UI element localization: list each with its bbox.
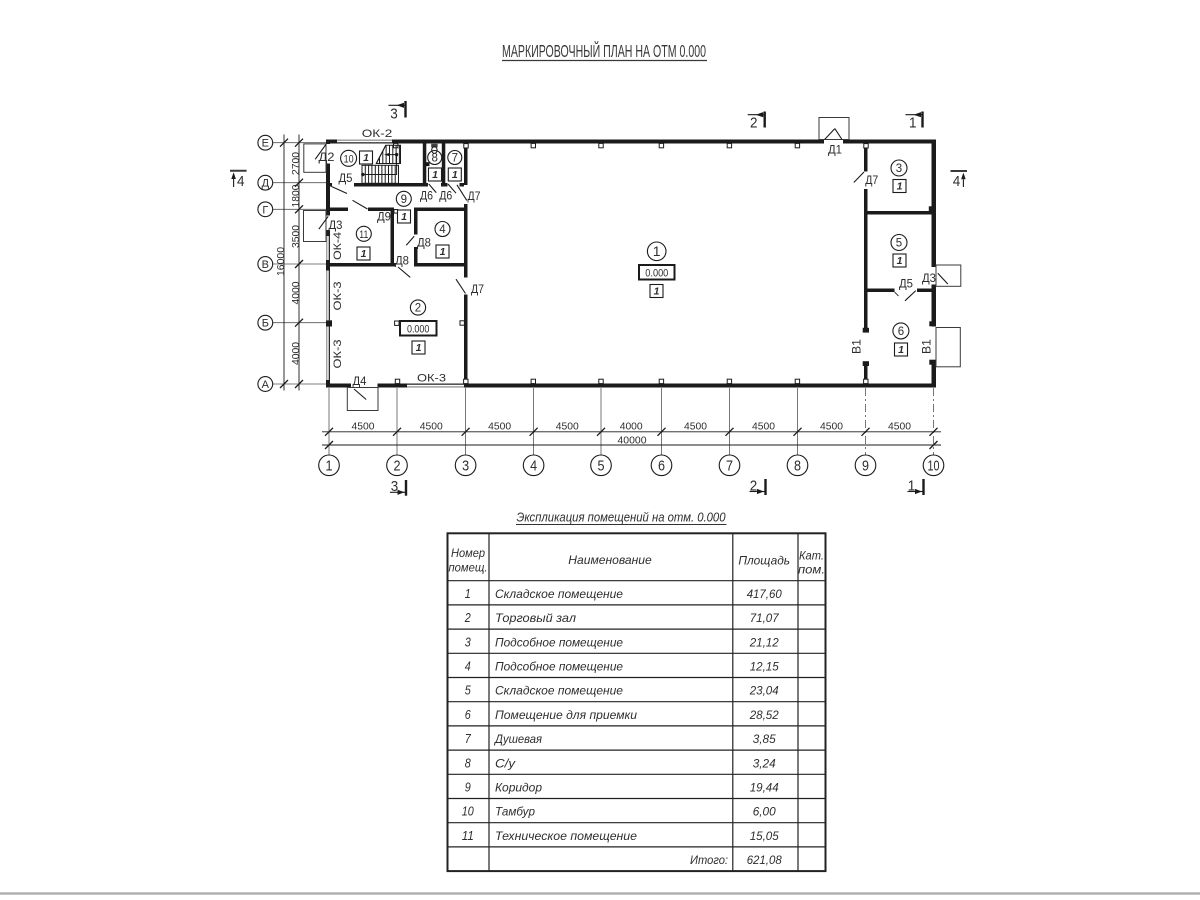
- svg-text:ОК-3: ОК-3: [417, 373, 446, 385]
- svg-text:1: 1: [898, 344, 904, 356]
- svg-text:7: 7: [726, 458, 733, 475]
- svg-text:В1: В1: [852, 339, 864, 354]
- svg-text:1: 1: [465, 587, 471, 601]
- svg-text:40000: 40000: [618, 435, 647, 447]
- svg-text:28,52: 28,52: [749, 708, 779, 722]
- svg-text:11: 11: [462, 829, 474, 843]
- svg-text:4000: 4000: [290, 342, 302, 365]
- svg-text:6,00: 6,00: [753, 805, 776, 819]
- svg-text:Помещение для приемки: Помещение для приемки: [495, 708, 637, 722]
- svg-text:1: 1: [909, 114, 917, 131]
- svg-text:1: 1: [416, 342, 422, 354]
- svg-text:1: 1: [440, 246, 446, 258]
- svg-text:В: В: [262, 259, 269, 271]
- svg-text:Д8: Д8: [417, 238, 431, 250]
- svg-text:1800: 1800: [290, 184, 302, 207]
- svg-text:Техническое помещение: Техническое помещение: [495, 829, 637, 843]
- svg-text:2: 2: [415, 303, 421, 315]
- svg-text:8: 8: [431, 153, 437, 165]
- svg-text:ОК-2: ОК-2: [362, 128, 393, 140]
- svg-text:С/у: С/у: [495, 756, 516, 770]
- svg-text:9: 9: [465, 781, 471, 795]
- svg-text:3: 3: [390, 105, 398, 122]
- svg-text:Д1: Д1: [828, 145, 842, 157]
- svg-text:Торговый зал: Торговый зал: [495, 611, 576, 625]
- svg-text:15,05: 15,05: [750, 829, 779, 843]
- svg-text:Д7: Д7: [471, 284, 484, 296]
- svg-text:Д7: Д7: [468, 191, 481, 203]
- svg-text:Складское помещение: Складское помещение: [495, 587, 623, 601]
- svg-text:Д8: Д8: [395, 256, 409, 268]
- svg-text:1: 1: [653, 243, 661, 259]
- svg-text:7: 7: [452, 153, 458, 165]
- svg-text:1: 1: [326, 458, 333, 475]
- svg-text:0.000: 0.000: [407, 324, 430, 336]
- svg-text:23,04: 23,04: [749, 684, 779, 698]
- svg-text:10: 10: [462, 805, 474, 819]
- svg-text:пом.: пом.: [798, 563, 825, 577]
- svg-text:Кат.: Кат.: [799, 549, 824, 563]
- svg-text:Д3: Д3: [922, 273, 936, 285]
- svg-text:3: 3: [391, 478, 399, 495]
- svg-text:2700: 2700: [290, 152, 302, 175]
- svg-text:4: 4: [237, 173, 245, 190]
- svg-text:1: 1: [361, 248, 367, 260]
- svg-text:4: 4: [953, 173, 961, 190]
- svg-text:4500: 4500: [352, 420, 375, 432]
- svg-text:4: 4: [465, 660, 471, 674]
- svg-text:1: 1: [897, 181, 903, 193]
- svg-text:4: 4: [530, 458, 537, 475]
- svg-text:1: 1: [363, 152, 369, 164]
- svg-text:8: 8: [465, 756, 471, 770]
- svg-text:Д2: Д2: [319, 152, 335, 164]
- svg-text:3,24: 3,24: [753, 756, 776, 770]
- svg-text:Складское помещение: Складское помещение: [495, 684, 623, 698]
- svg-text:Г: Г: [262, 204, 268, 216]
- svg-text:1: 1: [452, 169, 458, 181]
- svg-text:1: 1: [401, 211, 407, 223]
- svg-text:7: 7: [465, 732, 472, 746]
- svg-text:2: 2: [750, 114, 758, 131]
- svg-text:ОК-3: ОК-3: [332, 340, 344, 369]
- svg-text:МАРКИРОВОЧНЫЙ ПЛАН НА ОТМ 0.00: МАРКИРОВОЧНЫЙ ПЛАН НА ОТМ 0.000: [502, 40, 706, 61]
- svg-text:1: 1: [432, 169, 438, 181]
- svg-text:9: 9: [401, 194, 407, 206]
- svg-text:1: 1: [908, 478, 916, 495]
- svg-text:4000: 4000: [620, 420, 643, 432]
- svg-text:2: 2: [394, 458, 401, 475]
- svg-text:4500: 4500: [488, 420, 511, 432]
- svg-text:3500: 3500: [290, 225, 302, 248]
- svg-text:Д6: Д6: [439, 191, 452, 203]
- svg-text:4: 4: [439, 224, 446, 236]
- svg-text:ОК-4: ОК-4: [332, 232, 344, 260]
- svg-text:Д3: Д3: [329, 220, 343, 232]
- svg-text:4500: 4500: [420, 420, 443, 432]
- svg-text:Итого:: Итого:: [690, 853, 728, 867]
- svg-text:417,60: 417,60: [747, 587, 782, 601]
- svg-text:11: 11: [359, 229, 368, 241]
- svg-text:2: 2: [464, 611, 471, 625]
- svg-text:Д7: Д7: [865, 175, 878, 187]
- svg-text:1: 1: [897, 255, 903, 267]
- svg-text:71,07: 71,07: [750, 611, 780, 625]
- svg-text:21,12: 21,12: [749, 635, 779, 649]
- svg-text:0.000: 0.000: [645, 268, 668, 280]
- svg-text:4500: 4500: [752, 420, 775, 432]
- svg-text:Номер: Номер: [451, 546, 485, 560]
- svg-text:10: 10: [344, 153, 354, 165]
- svg-text:А: А: [262, 379, 270, 391]
- svg-text:Тамбур: Тамбур: [495, 805, 535, 819]
- svg-text:Д5: Д5: [899, 279, 913, 291]
- svg-text:3: 3: [462, 458, 469, 475]
- svg-text:1: 1: [654, 286, 660, 298]
- svg-text:Д5: Д5: [339, 173, 353, 185]
- svg-text:10: 10: [928, 458, 940, 475]
- svg-text:3,85: 3,85: [753, 732, 776, 746]
- svg-text:4000: 4000: [290, 281, 302, 304]
- svg-text:Д4: Д4: [353, 376, 368, 388]
- svg-text:5: 5: [896, 238, 902, 250]
- svg-text:Коридор: Коридор: [495, 781, 542, 795]
- svg-text:4500: 4500: [820, 420, 843, 432]
- svg-text:6: 6: [465, 708, 471, 722]
- svg-text:4500: 4500: [556, 420, 579, 432]
- svg-text:помещ.: помещ.: [449, 561, 488, 575]
- svg-text:Б: Б: [262, 318, 269, 330]
- svg-text:Подсобное помещение: Подсобное помещение: [495, 635, 623, 649]
- svg-text:Е: Е: [262, 138, 269, 150]
- svg-text:4500: 4500: [888, 420, 911, 432]
- svg-text:Подсобное помещение: Подсобное помещение: [495, 660, 623, 674]
- svg-text:6: 6: [658, 458, 665, 475]
- svg-text:3: 3: [896, 163, 902, 175]
- svg-text:5: 5: [465, 684, 471, 698]
- svg-text:4500: 4500: [684, 420, 707, 432]
- svg-text:Д: Д: [262, 178, 270, 190]
- svg-text:Экспликация помещений на отм.: Экспликация помещений на отм. 0.000: [517, 510, 727, 525]
- svg-text:19,44: 19,44: [750, 781, 779, 795]
- svg-text:9: 9: [862, 458, 869, 475]
- svg-text:Наименование: Наименование: [568, 553, 652, 567]
- svg-text:16000: 16000: [275, 247, 287, 276]
- svg-text:621,08: 621,08: [747, 853, 782, 867]
- svg-text:Д6: Д6: [420, 191, 433, 203]
- svg-text:5: 5: [598, 458, 605, 475]
- svg-text:6: 6: [898, 326, 904, 338]
- svg-text:ОК-3: ОК-3: [332, 282, 344, 311]
- svg-text:В1: В1: [922, 339, 934, 354]
- svg-text:12,15: 12,15: [750, 660, 779, 674]
- svg-text:8: 8: [794, 458, 801, 475]
- svg-text:2: 2: [750, 478, 758, 495]
- svg-text:Д9: Д9: [377, 212, 391, 224]
- svg-text:Душевая: Душевая: [493, 732, 542, 746]
- svg-text:3: 3: [465, 635, 471, 649]
- svg-text:Площадь: Площадь: [738, 554, 790, 568]
